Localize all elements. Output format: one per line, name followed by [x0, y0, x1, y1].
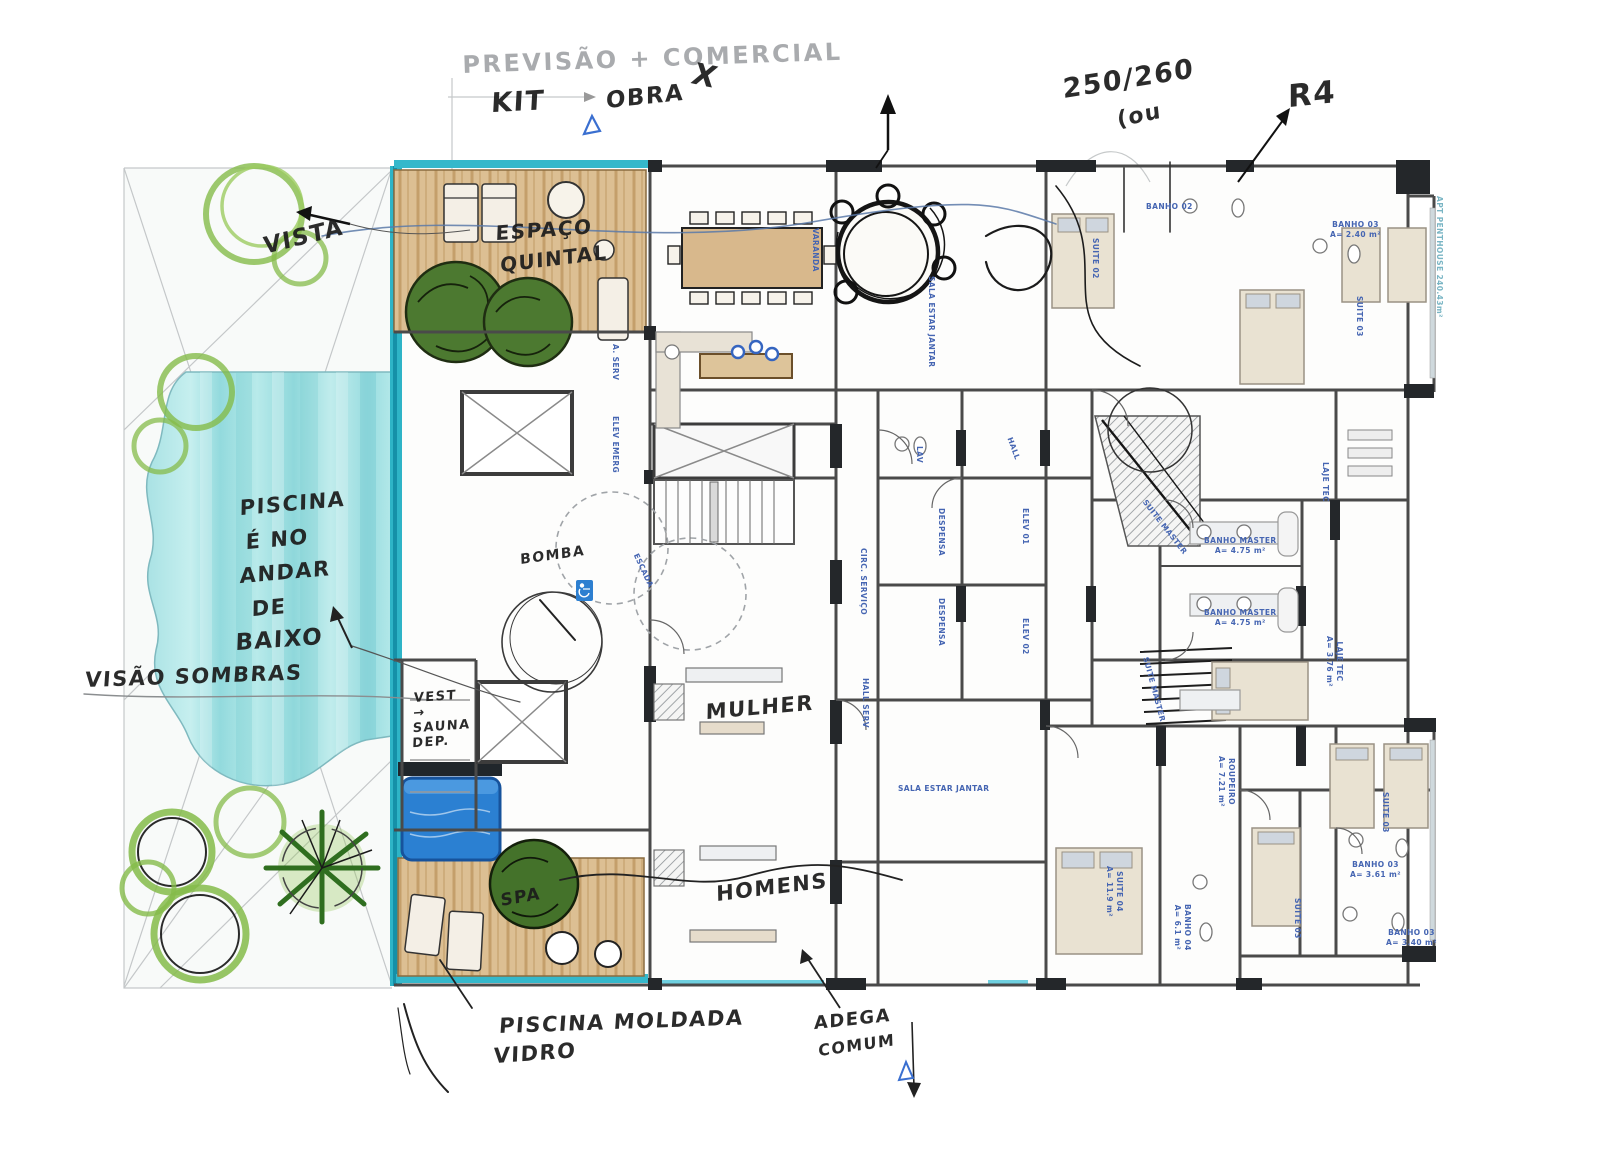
floor-plan-sketch: PREVISÃO + COMERCIALKITOBRAX250/260(ouR4…	[0, 0, 1600, 1168]
plan-drawing	[0, 0, 1600, 1168]
wheelchair-icon	[576, 580, 593, 601]
